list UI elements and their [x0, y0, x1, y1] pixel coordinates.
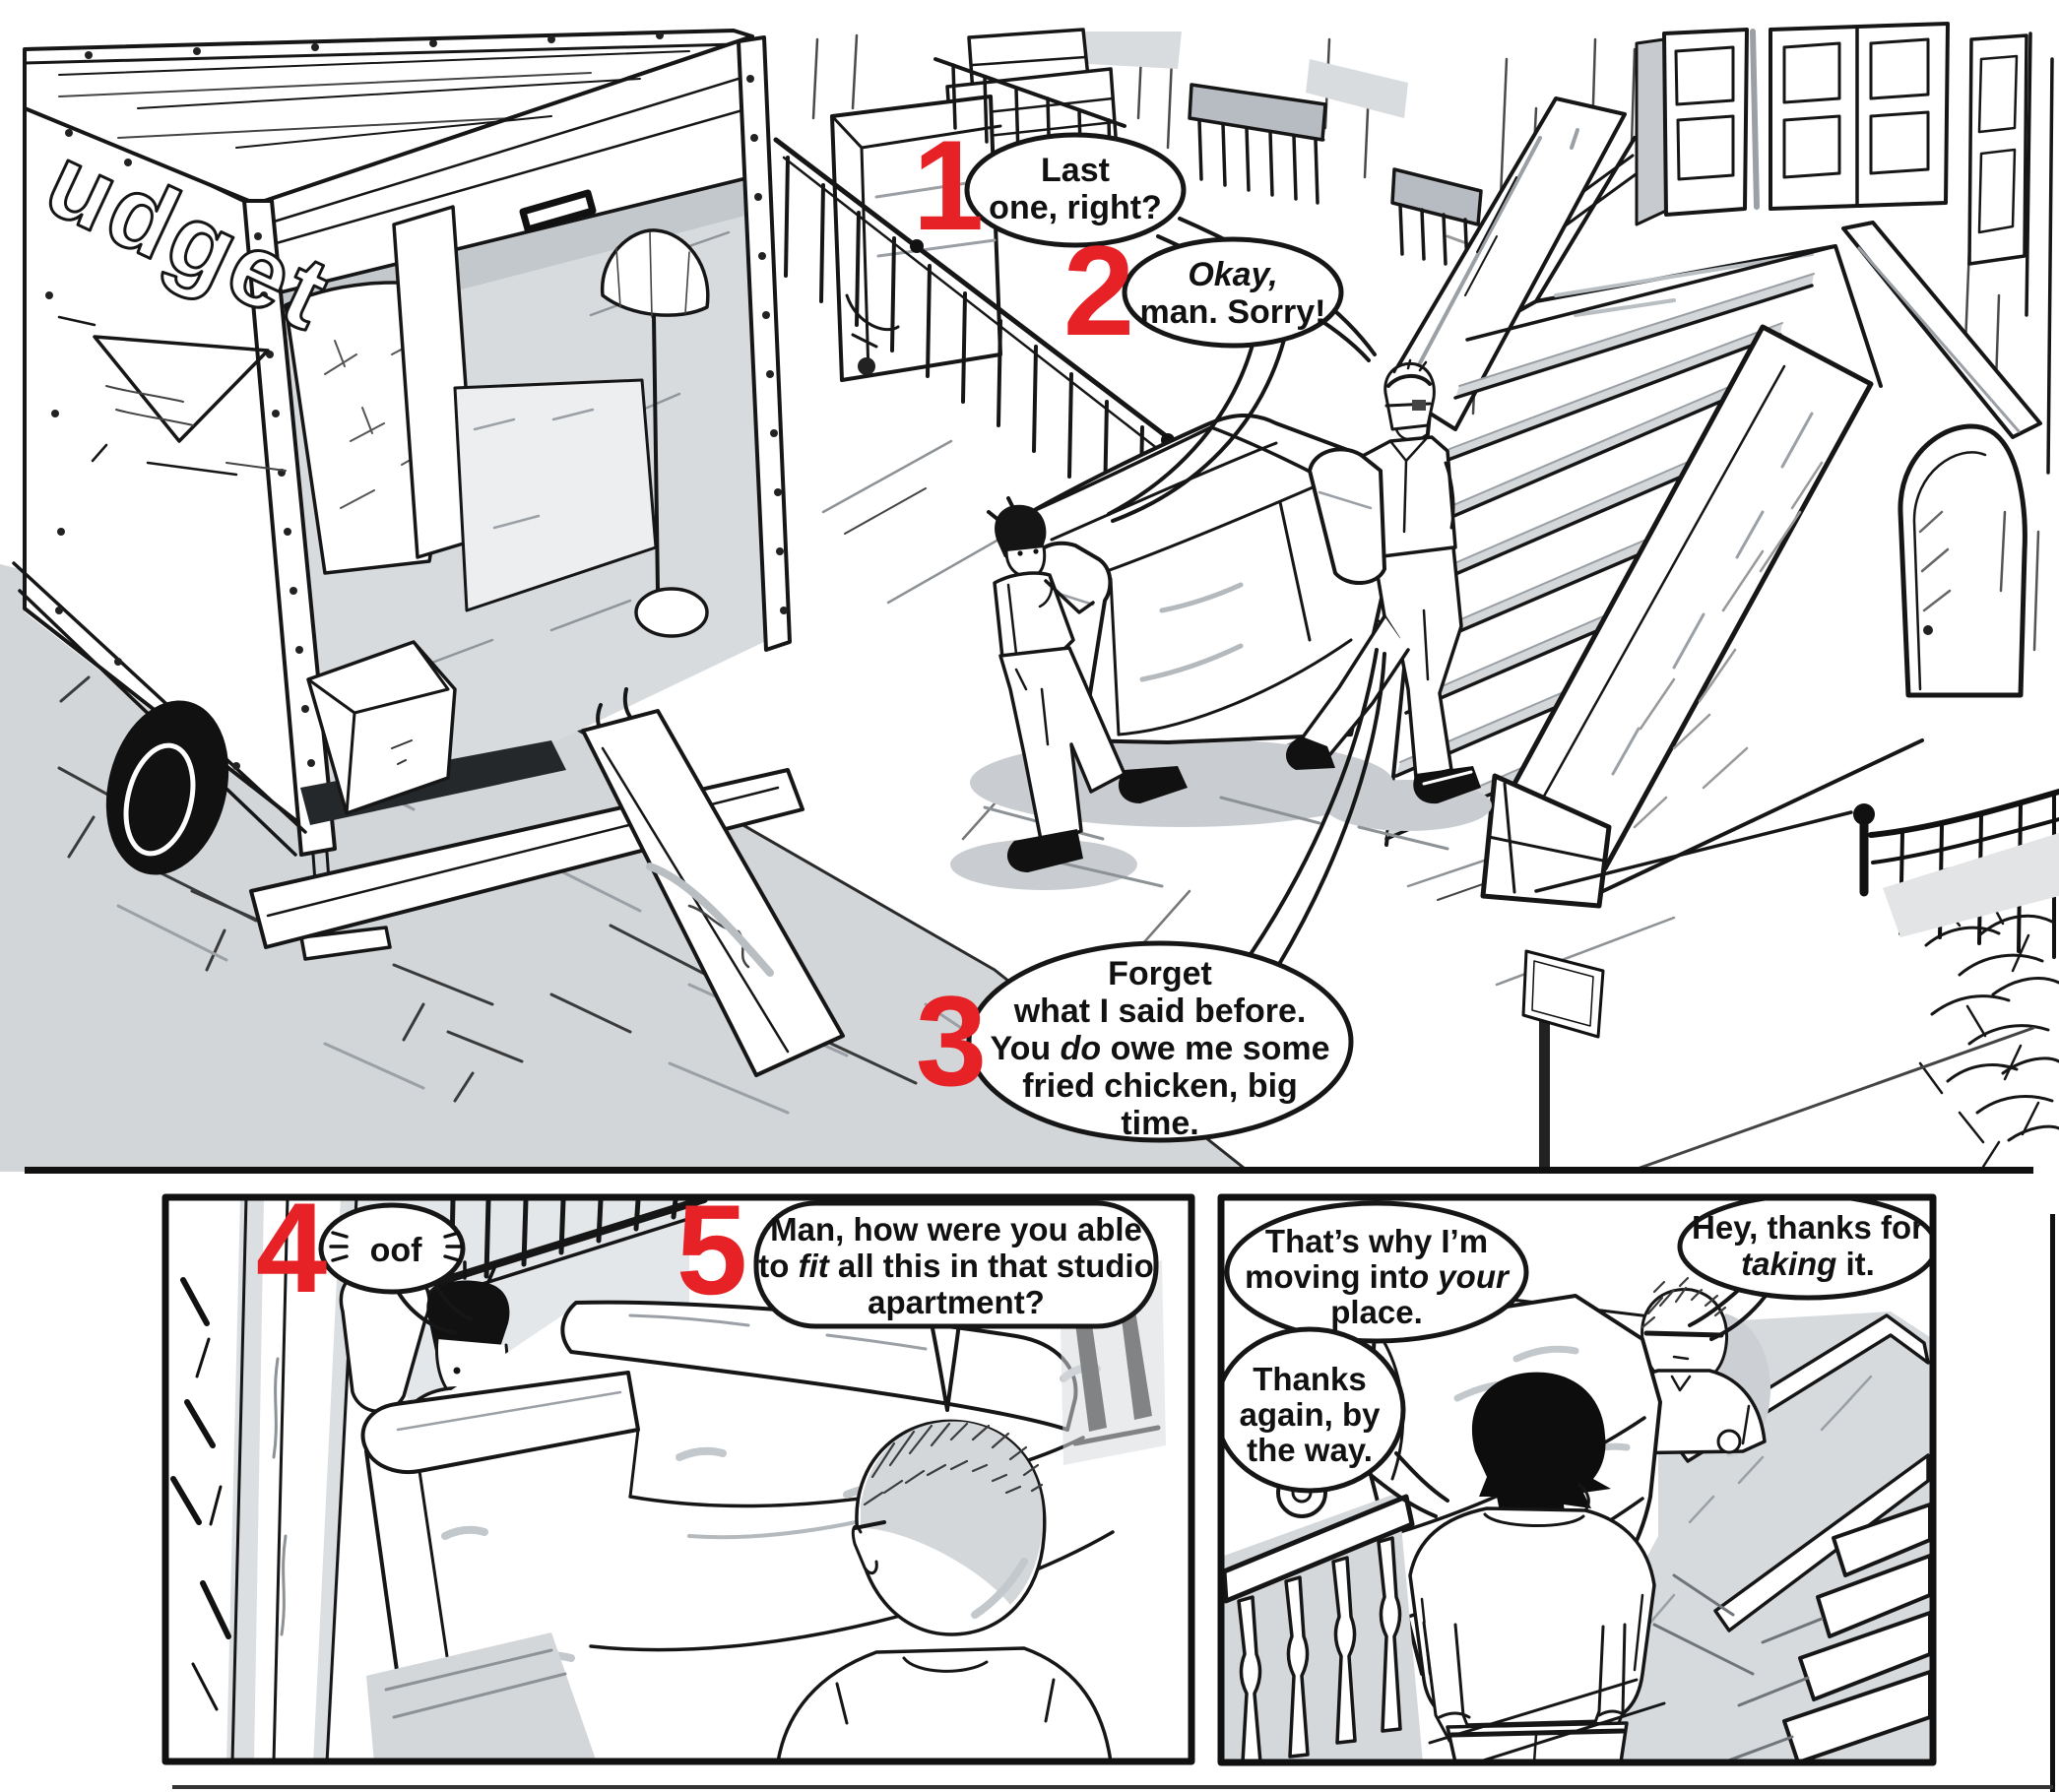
svg-text:Thanks: Thanks [1253, 1361, 1367, 1397]
svg-text:Forget: Forget [1108, 955, 1212, 992]
svg-text:oof: oof [370, 1232, 423, 1269]
svg-text:time.: time. [1121, 1105, 1198, 1142]
svg-text:man. Sorry!: man. Sorry! [1140, 293, 1326, 331]
svg-text:taking it.: taking it. [1741, 1246, 1875, 1282]
svg-text:what I said before.: what I said before. [1013, 992, 1307, 1030]
svg-text:Man, how were you able: Man, how were you able [770, 1211, 1142, 1248]
svg-text:3: 3 [916, 969, 987, 1113]
svg-text:Hey, thanks for: Hey, thanks for [1692, 1209, 1924, 1246]
svg-text:4: 4 [256, 1176, 327, 1319]
svg-text:1: 1 [913, 113, 984, 257]
svg-text:Last: Last [1041, 152, 1110, 189]
svg-text:again, by: again, by [1239, 1396, 1381, 1433]
svg-text:place.: place. [1330, 1294, 1423, 1330]
svg-text:fried chicken, big: fried chicken, big [1022, 1067, 1298, 1105]
svg-text:the way.: the way. [1247, 1432, 1373, 1468]
svg-text:You do owe me some: You do owe me some [990, 1030, 1329, 1067]
svg-text:to fit all this in that studio: to fit all this in that studio [758, 1248, 1153, 1284]
svg-text:That’s why I’m: That’s why I’m [1265, 1223, 1488, 1259]
svg-text:apartment?: apartment? [868, 1284, 1045, 1320]
svg-text:2: 2 [1063, 219, 1134, 362]
svg-text:Okay,: Okay, [1188, 256, 1277, 293]
svg-text:5: 5 [676, 1178, 747, 1321]
svg-text:moving into your: moving into your [1245, 1258, 1511, 1295]
